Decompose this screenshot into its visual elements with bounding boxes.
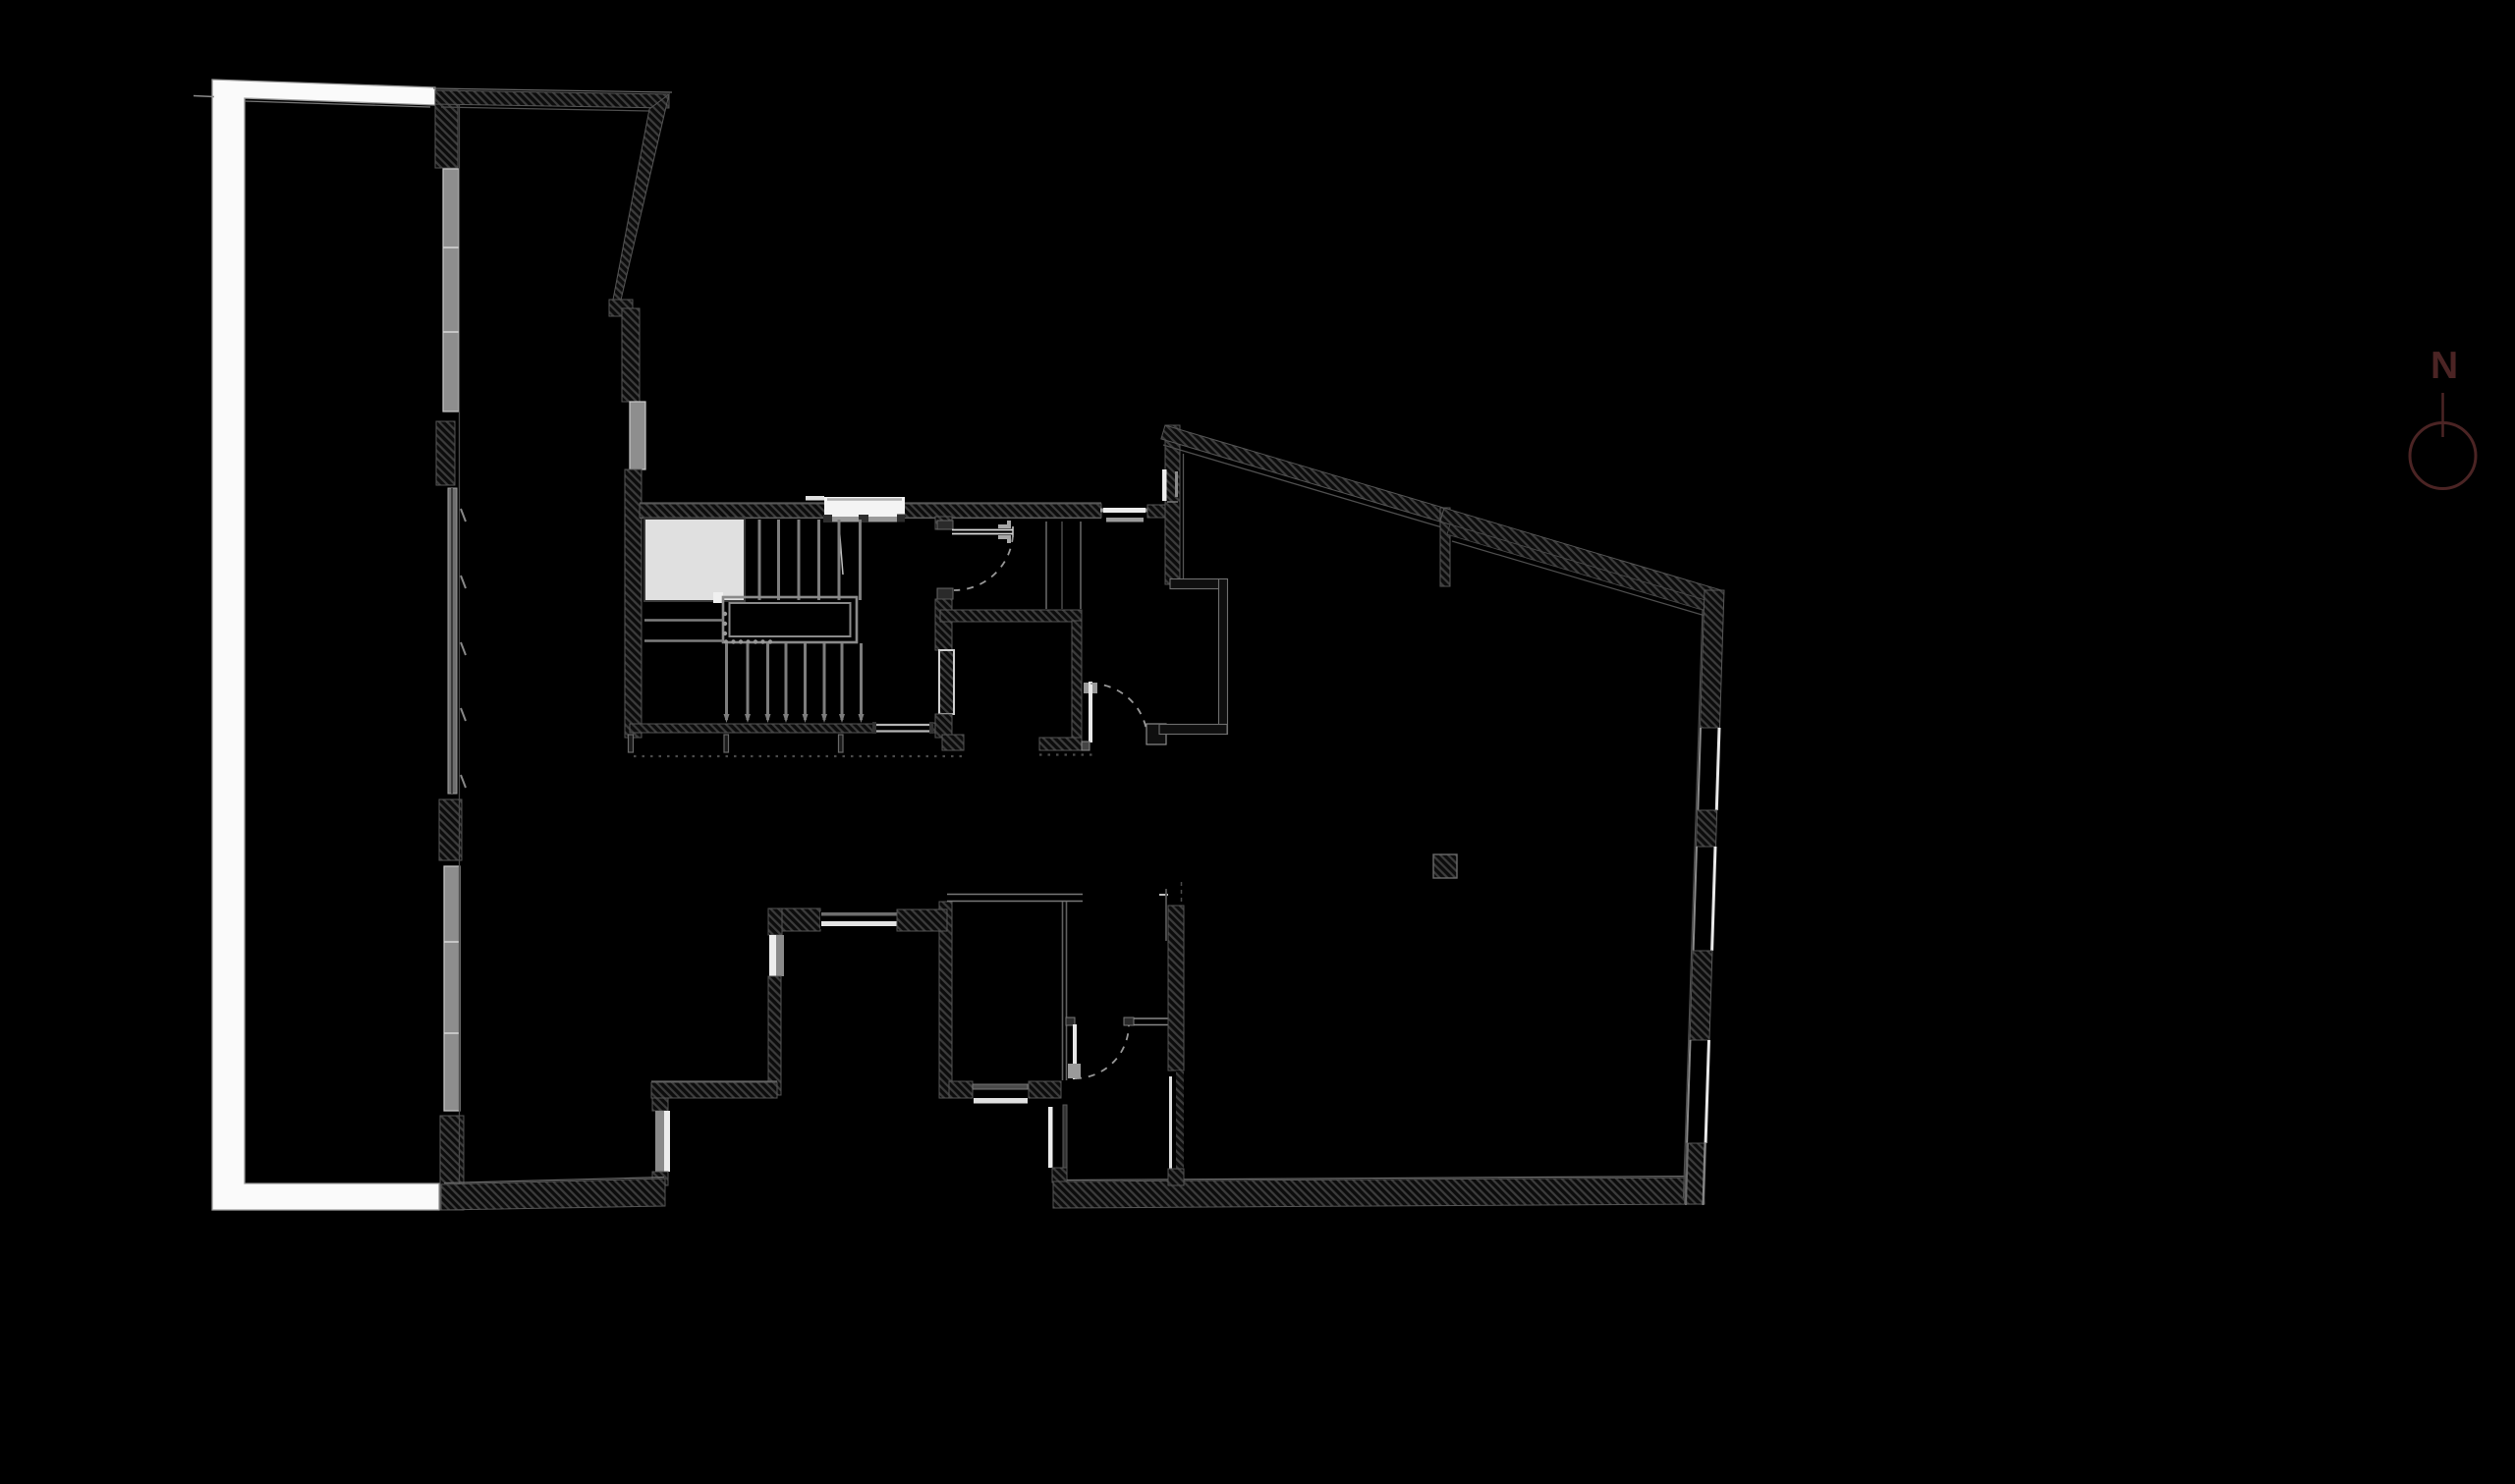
svg-text:N: N <box>2431 345 2458 387</box>
